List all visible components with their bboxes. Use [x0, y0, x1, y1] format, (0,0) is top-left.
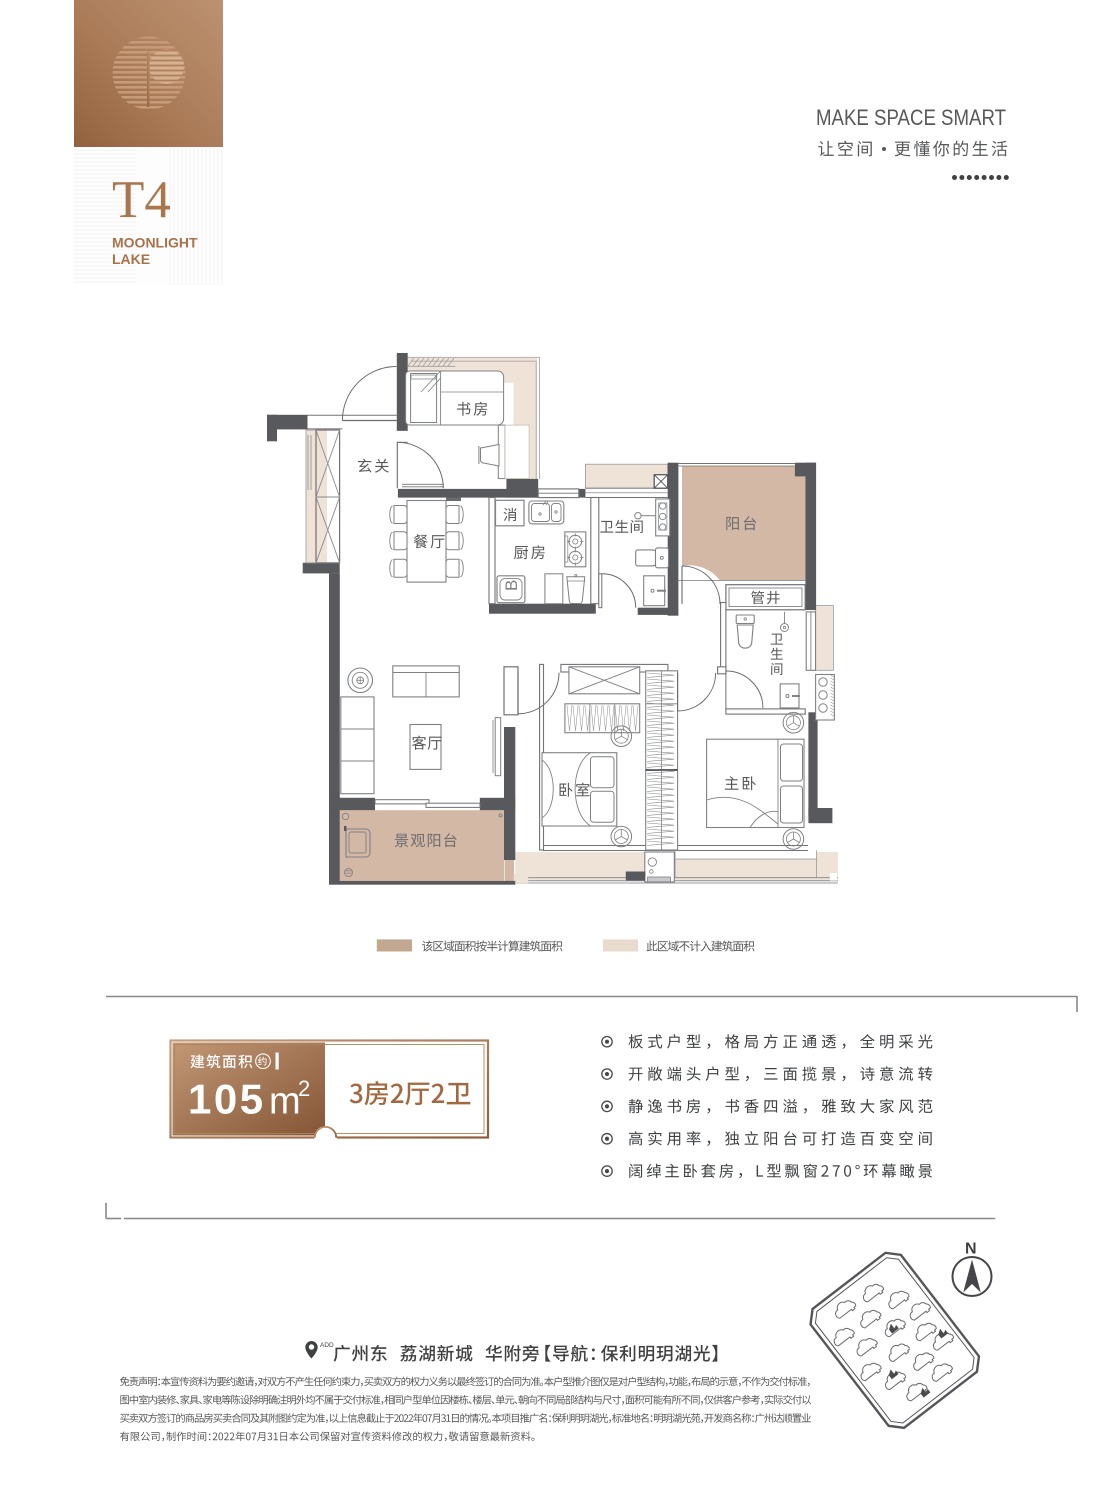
svg-text:N: N [965, 1241, 977, 1258]
svg-text:B: B [502, 580, 521, 591]
svg-text:ADD: ADD [320, 1342, 334, 1349]
svg-text:2: 2 [298, 1076, 310, 1101]
svg-text:MAKE SPACE SMART: MAKE SPACE SMART [816, 105, 1006, 130]
svg-text:105: 105 [188, 1076, 266, 1123]
svg-text:T4: T4 [112, 171, 171, 229]
svg-text:LAKE: LAKE [112, 251, 150, 267]
svg-text:m: m [269, 1081, 301, 1123]
svg-text:MOONLIGHT: MOONLIGHT [112, 235, 198, 251]
